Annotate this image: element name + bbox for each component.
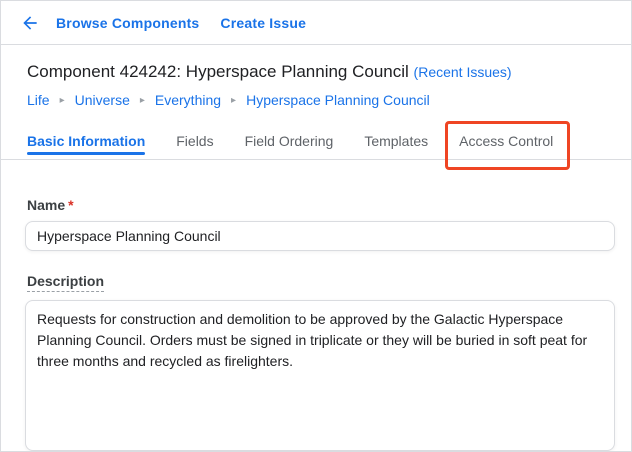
breadcrumb-item-life[interactable]: Life [27, 92, 50, 108]
tab-templates[interactable]: Templates [364, 127, 428, 159]
tab-fields[interactable]: Fields [176, 127, 213, 159]
browse-components-link[interactable]: Browse Components [56, 15, 199, 31]
page-title: Component 424242: Hyperspace Planning Co… [27, 62, 409, 81]
name-label: Name [27, 197, 65, 213]
top-navigation-bar: Browse Components Create Issue [1, 1, 631, 45]
chevron-right-icon: ▸ [231, 95, 236, 106]
name-input[interactable] [25, 221, 615, 251]
arrow-back-icon [20, 13, 40, 33]
basic-information-form: Name* Description Requests for construct… [1, 197, 631, 451]
description-label: Description [27, 273, 104, 292]
chevron-right-icon: ▸ [140, 95, 145, 106]
tab-basic-information[interactable]: Basic Information [27, 127, 145, 159]
back-button[interactable] [20, 13, 40, 33]
tab-field-ordering[interactable]: Field Ordering [245, 127, 334, 159]
component-edit-page: Browse Components Create Issue Component… [0, 0, 632, 452]
breadcrumb-item-universe[interactable]: Universe [75, 92, 130, 108]
breadcrumb-item-hyperspace-planning-council[interactable]: Hyperspace Planning Council [246, 92, 430, 108]
create-issue-link[interactable]: Create Issue [220, 15, 306, 31]
recent-issues-link[interactable]: (Recent Issues) [414, 64, 512, 80]
tab-bar: Basic Information Fields Field Ordering … [1, 127, 631, 160]
tab-access-control-label: Access Control [459, 133, 553, 149]
description-textarea[interactable]: Requests for construction and demolition… [25, 300, 615, 451]
tab-access-control[interactable]: Access Control [459, 127, 553, 159]
name-field-label-row: Name* [27, 197, 615, 213]
chevron-right-icon: ▸ [60, 95, 65, 106]
required-asterisk: * [68, 197, 73, 213]
breadcrumb-item-everything[interactable]: Everything [155, 92, 221, 108]
page-title-row: Component 424242: Hyperspace Planning Co… [27, 62, 615, 82]
breadcrumb: Life ▸ Universe ▸ Everything ▸ Hyperspac… [27, 92, 615, 108]
description-field-label-row: Description [27, 273, 615, 292]
